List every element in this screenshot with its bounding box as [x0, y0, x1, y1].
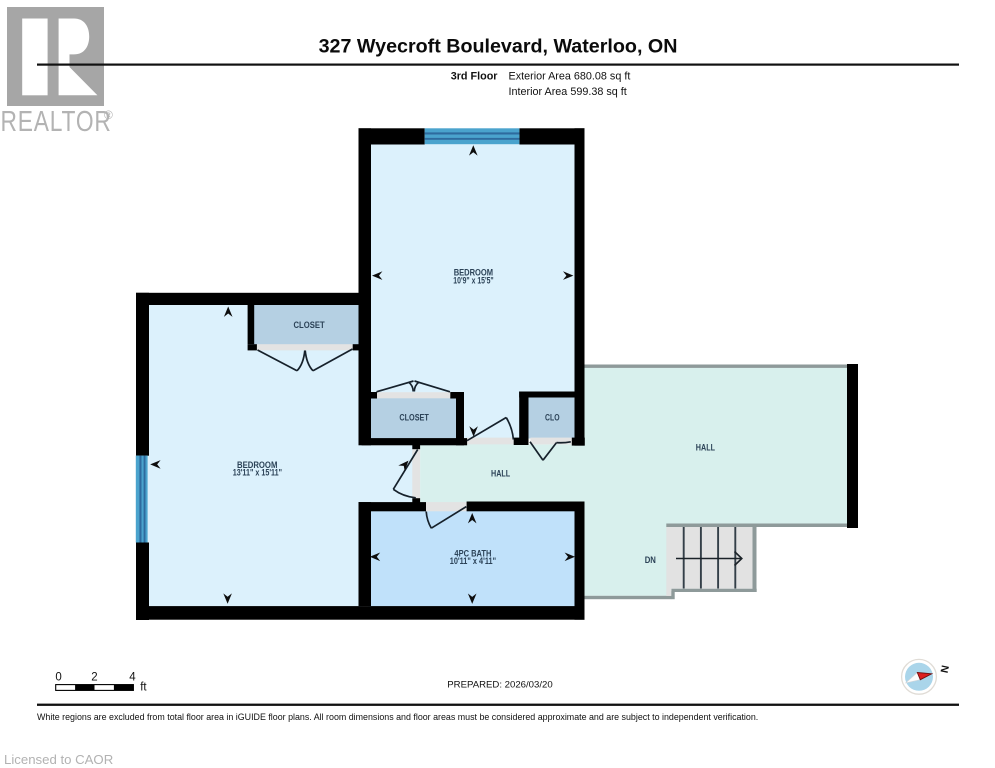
svg-text:2: 2	[91, 672, 97, 684]
svg-text:ft: ft	[140, 682, 147, 694]
svg-text:PREPARED: 2026/03/20: PREPARED: 2026/03/20	[447, 680, 552, 691]
svg-text:10'11" x 4'11": 10'11" x 4'11"	[450, 556, 496, 566]
svg-text:0: 0	[55, 672, 61, 684]
svg-text:White regions are excluded fro: White regions are excluded from total fl…	[37, 712, 758, 722]
svg-text:HALL: HALL	[491, 468, 510, 478]
svg-text:10'9" x 15'5": 10'9" x 15'5"	[453, 275, 493, 285]
svg-text:REALTOR: REALTOR	[1, 107, 112, 138]
svg-text:3rd Floor: 3rd Floor	[451, 71, 499, 83]
svg-text:CLO: CLO	[545, 413, 560, 423]
svg-text:Interior Area 599.38 sq ft: Interior Area 599.38 sq ft	[509, 86, 627, 98]
svg-text:N: N	[937, 664, 950, 674]
svg-text:HALL: HALL	[696, 443, 715, 453]
svg-text:CLOSET: CLOSET	[294, 320, 325, 330]
svg-text:CLOSET: CLOSET	[399, 412, 429, 422]
svg-text:Exterior Area 680.08 sq ft: Exterior Area 680.08 sq ft	[509, 71, 631, 83]
svg-text:4: 4	[129, 672, 136, 684]
svg-text:13'11" x 15'11": 13'11" x 15'11"	[233, 468, 282, 478]
svg-text:®: ®	[104, 108, 113, 122]
svg-text:Licensed to CAOR: Licensed to CAOR	[4, 752, 113, 767]
svg-text:327 Wyecroft Boulevard, Waterl: 327 Wyecroft Boulevard, Waterloo, ON	[319, 35, 678, 57]
svg-text:DN: DN	[645, 555, 656, 565]
